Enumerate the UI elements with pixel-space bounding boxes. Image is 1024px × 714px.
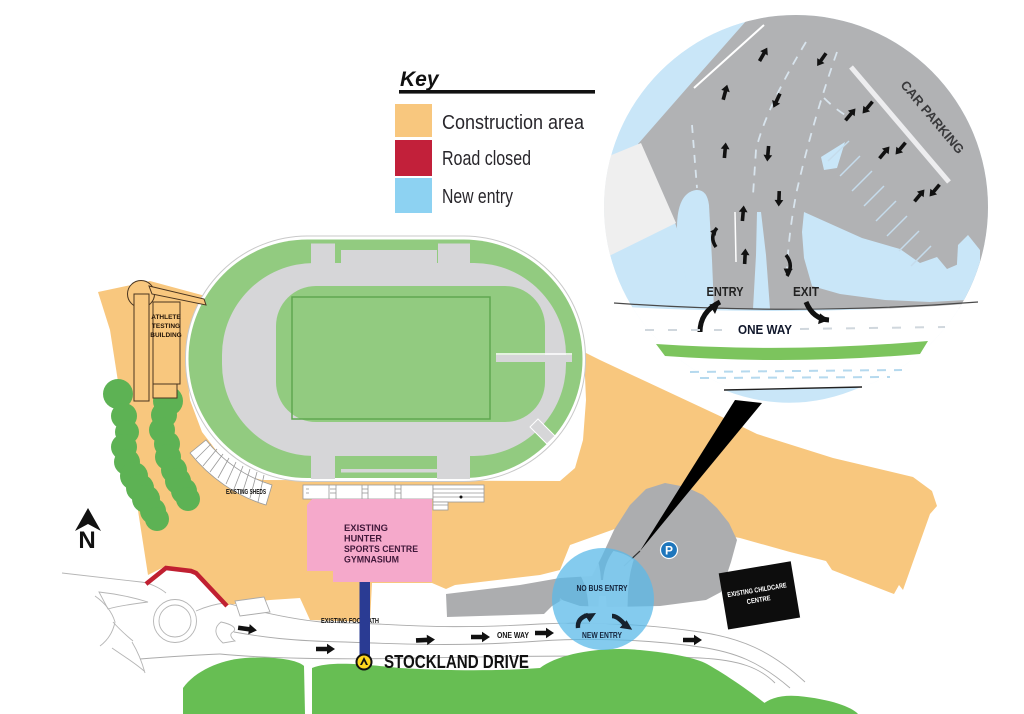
- svg-text:BUILDING: BUILDING: [150, 332, 181, 339]
- svg-text:GYMNASIUM: GYMNASIUM: [344, 555, 399, 566]
- svg-text:HUNTER: HUNTER: [344, 534, 382, 545]
- svg-text:Road closed: Road closed: [442, 148, 531, 170]
- svg-text:ATHLETE: ATHLETE: [151, 314, 181, 321]
- svg-text:NEW ENTRY: NEW ENTRY: [582, 631, 623, 640]
- svg-text:ONE WAY: ONE WAY: [738, 322, 792, 337]
- svg-text:STOCKLAND DRIVE: STOCKLAND DRIVE: [384, 651, 529, 672]
- svg-text:EXISTING FOOTPATH: EXISTING FOOTPATH: [321, 616, 379, 625]
- svg-text:EXIT: EXIT: [793, 284, 819, 299]
- svg-text:SPORTS CENTRE: SPORTS CENTRE: [344, 544, 418, 555]
- svg-text:Key: Key: [400, 68, 440, 91]
- svg-text:Construction area: Construction area: [442, 112, 585, 134]
- svg-text:N: N: [78, 527, 95, 554]
- svg-text:P: P: [665, 544, 673, 558]
- svg-text:New entry: New entry: [442, 186, 513, 208]
- svg-text:ONE WAY: ONE WAY: [497, 630, 529, 640]
- svg-text:TESTING: TESTING: [152, 323, 180, 330]
- svg-text:NO BUS ENTRY: NO BUS ENTRY: [577, 583, 628, 593]
- svg-text:ENTRY: ENTRY: [707, 284, 744, 299]
- svg-text:EXISTING: EXISTING: [344, 523, 388, 534]
- svg-text:EXISTING SHEDS: EXISTING SHEDS: [226, 487, 266, 496]
